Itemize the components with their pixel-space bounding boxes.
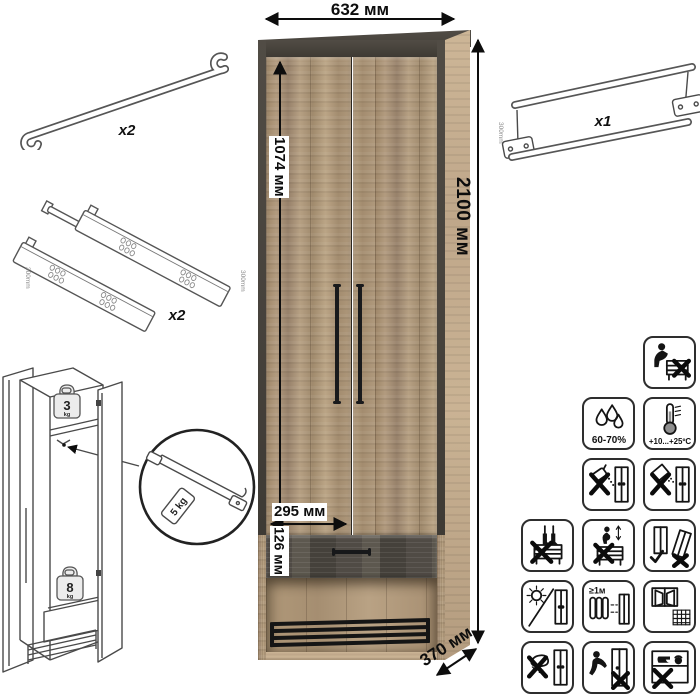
door-height-dimension-label: 1074 мм — [269, 136, 289, 198]
drawer-height-dimension-label: 126 мм — [270, 526, 289, 576]
width-dimension-label: 632 мм — [270, 1, 450, 19]
wardrobe-product-diagram: 632 мм 2100 мм 1074 мм 295 мм 126 мм 370… — [0, 0, 700, 700]
height-dimension-label: 2100 мм — [452, 177, 472, 256]
inner-width-dimension-label: 295 мм — [272, 503, 327, 521]
dimension-arrows — [0, 0, 700, 700]
